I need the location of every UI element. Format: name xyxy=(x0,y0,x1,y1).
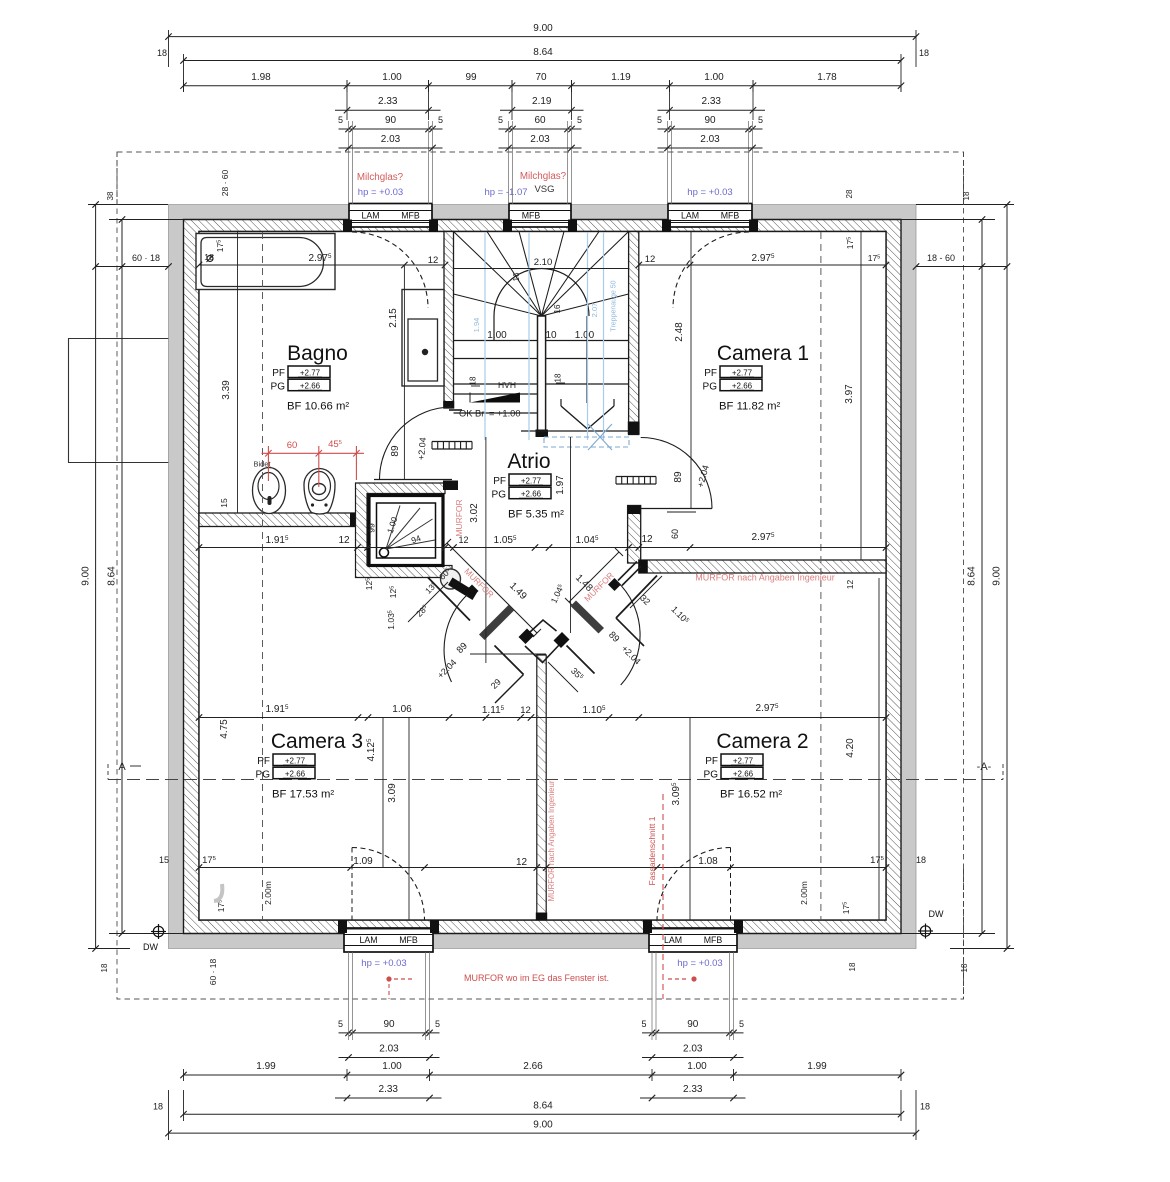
svg-text:Bagno: Bagno xyxy=(287,342,348,365)
svg-text:2.00m: 2.00m xyxy=(263,881,273,905)
svg-text:9.00: 9.00 xyxy=(533,23,553,34)
svg-text:DW: DW xyxy=(929,909,944,919)
svg-text:MURFOR nach Angaben Ingenieur: MURFOR nach Angaben Ingenieur xyxy=(547,780,556,901)
svg-text:1.99: 1.99 xyxy=(256,1061,276,1072)
svg-text:12: 12 xyxy=(645,254,656,265)
svg-text:18: 18 xyxy=(204,252,214,262)
svg-text:5: 5 xyxy=(438,115,443,125)
svg-text:1.94: 1.94 xyxy=(472,318,481,333)
svg-text:1.09: 1.09 xyxy=(353,856,373,867)
svg-text:Milchglas?: Milchglas? xyxy=(357,172,404,183)
svg-text:MFB: MFB xyxy=(401,211,420,221)
svg-text:+2.77: +2.77 xyxy=(732,368,753,377)
svg-text:90: 90 xyxy=(383,1019,395,1030)
svg-text:9.00: 9.00 xyxy=(992,566,1003,586)
svg-text:5: 5 xyxy=(758,115,763,125)
svg-text:12: 12 xyxy=(428,255,439,266)
svg-text:MFB: MFB xyxy=(399,935,418,945)
svg-text:16: 16 xyxy=(553,304,562,313)
svg-text:PF: PF xyxy=(272,368,285,379)
svg-text:MURFOR: MURFOR xyxy=(454,499,464,536)
svg-text:+2.66: +2.66 xyxy=(285,770,306,779)
svg-text:2.33: 2.33 xyxy=(378,96,398,107)
svg-text:5: 5 xyxy=(338,115,343,125)
svg-text:38: 38 xyxy=(106,191,115,200)
svg-text:hp = +0.03: hp = +0.03 xyxy=(687,187,732,198)
svg-text:+2.77: +2.77 xyxy=(285,756,306,765)
svg-text:MURFOR wo im EG das Fenster is: MURFOR wo im EG das Fenster ist. xyxy=(464,973,609,983)
svg-text:LAM: LAM xyxy=(664,935,682,945)
svg-text:1.99: 1.99 xyxy=(807,1061,827,1072)
svg-text:PG: PG xyxy=(704,770,719,781)
svg-text:DW: DW xyxy=(143,942,158,952)
svg-text:hp = -1.07: hp = -1.07 xyxy=(484,187,527,198)
svg-text:4.20: 4.20 xyxy=(845,738,856,758)
svg-text:9.00: 9.00 xyxy=(81,566,92,586)
svg-text:4.75: 4.75 xyxy=(219,719,230,739)
svg-text:1.98: 1.98 xyxy=(251,72,271,83)
svg-text:+2.66: +2.66 xyxy=(521,490,542,499)
svg-text:BF 5.35 m²: BF 5.35 m² xyxy=(508,509,564,521)
svg-text:PG: PG xyxy=(492,490,507,501)
svg-text:MFB: MFB xyxy=(721,211,740,221)
svg-text:VSG: VSG xyxy=(534,184,554,195)
svg-text:2.03: 2.03 xyxy=(381,134,401,145)
svg-text:5: 5 xyxy=(577,115,582,125)
svg-text:1.06: 1.06 xyxy=(392,704,412,715)
svg-text:60: 60 xyxy=(670,529,680,539)
svg-text:2.33: 2.33 xyxy=(702,96,722,107)
svg-text:BF 11.82 m²: BF 11.82 m² xyxy=(719,401,781,413)
svg-text:Camera 3: Camera 3 xyxy=(271,730,363,753)
svg-text:8.64: 8.64 xyxy=(533,47,553,58)
svg-text:5: 5 xyxy=(739,1019,744,1029)
svg-text:1.97: 1.97 xyxy=(555,475,566,495)
svg-text:28: 28 xyxy=(845,189,854,198)
svg-text:1.00: 1.00 xyxy=(382,72,402,83)
svg-text:-A-: -A- xyxy=(977,761,992,773)
svg-text:89: 89 xyxy=(673,471,684,483)
svg-text:LAM: LAM xyxy=(681,211,699,221)
svg-text:+2.77: +2.77 xyxy=(300,368,321,377)
svg-text:+2.77: +2.77 xyxy=(521,476,542,485)
svg-text:15: 15 xyxy=(159,855,169,865)
svg-text:PG: PG xyxy=(271,382,286,393)
svg-text:12: 12 xyxy=(641,534,653,545)
svg-text:8.64: 8.64 xyxy=(107,566,118,586)
svg-text:PF: PF xyxy=(493,476,506,487)
svg-text:3.39: 3.39 xyxy=(221,380,232,400)
svg-text:1.78: 1.78 xyxy=(817,72,837,83)
svg-text:Milchglas?: Milchglas? xyxy=(520,171,567,182)
svg-text:18 - 60: 18 - 60 xyxy=(927,253,955,263)
svg-text:2.03: 2.03 xyxy=(683,1044,703,1055)
svg-text:12: 12 xyxy=(516,857,528,868)
svg-text:9.00: 9.00 xyxy=(533,1120,553,1131)
svg-text:hp = +0.03: hp = +0.03 xyxy=(361,958,406,969)
svg-text:99: 99 xyxy=(367,523,377,533)
svg-text:18: 18 xyxy=(919,48,929,58)
svg-text:3.97: 3.97 xyxy=(844,384,855,404)
svg-text:BF 10.66 m²: BF 10.66 m² xyxy=(287,401,349,413)
svg-text:BF 16.52 m²: BF 16.52 m² xyxy=(720,789,782,801)
svg-text:3.09: 3.09 xyxy=(387,783,398,803)
svg-text:2.03: 2.03 xyxy=(379,1044,399,1055)
svg-text:+2.04: +2.04 xyxy=(416,437,428,461)
svg-text:18: 18 xyxy=(100,963,109,972)
svg-text:2.48: 2.48 xyxy=(674,322,685,342)
svg-text:1.00: 1.00 xyxy=(704,72,724,83)
svg-text:BF 17.53 m²: BF 17.53 m² xyxy=(272,789,334,801)
svg-text:5: 5 xyxy=(435,1019,440,1029)
svg-text:1.00: 1.00 xyxy=(687,1061,707,1072)
svg-text:18: 18 xyxy=(157,48,167,58)
svg-text:18: 18 xyxy=(916,855,926,865)
svg-text:60: 60 xyxy=(534,115,546,126)
svg-text:3.02: 3.02 xyxy=(469,503,480,523)
svg-text:70: 70 xyxy=(535,72,547,83)
svg-text:2.03: 2.03 xyxy=(530,134,550,145)
svg-text:1.00: 1.00 xyxy=(487,330,507,341)
svg-text:Atrio: Atrio xyxy=(507,450,550,473)
svg-text:Treppenauge 50: Treppenauge 50 xyxy=(611,280,618,331)
svg-text:Fassadenschnitt 1: Fassadenschnitt 1 xyxy=(647,816,657,885)
svg-text:1.08: 1.08 xyxy=(698,856,718,867)
svg-text:MURFOR nach Angaben Ingenieur: MURFOR nach Angaben Ingenieur xyxy=(695,573,835,583)
svg-text:8.64: 8.64 xyxy=(533,1101,553,1112)
svg-text:15: 15 xyxy=(219,498,229,508)
svg-text:12: 12 xyxy=(520,705,531,716)
svg-text:18: 18 xyxy=(153,1102,163,1112)
svg-text:HVH: HVH xyxy=(498,380,516,390)
svg-text:2.33: 2.33 xyxy=(379,1084,399,1095)
svg-text:5: 5 xyxy=(641,1019,646,1029)
svg-text:8.64: 8.64 xyxy=(967,566,978,586)
svg-text:16: 16 xyxy=(512,272,521,281)
svg-text:90: 90 xyxy=(687,1019,699,1030)
svg-text:+2.66: +2.66 xyxy=(300,382,321,391)
svg-text:2.00m: 2.00m xyxy=(799,881,809,905)
svg-text:PG: PG xyxy=(256,770,271,781)
svg-text:2.15: 2.15 xyxy=(388,308,399,328)
svg-text:+2.77: +2.77 xyxy=(733,756,754,765)
svg-text:hp = +0.03: hp = +0.03 xyxy=(358,187,403,198)
svg-text:18: 18 xyxy=(848,962,857,971)
svg-text:18: 18 xyxy=(554,373,563,382)
svg-text:60 · 18: 60 · 18 xyxy=(208,958,218,985)
svg-text:LAM: LAM xyxy=(359,935,377,945)
svg-text:60: 60 xyxy=(287,440,298,451)
svg-text:10: 10 xyxy=(545,330,557,341)
svg-text:12: 12 xyxy=(338,535,350,546)
svg-text:12: 12 xyxy=(845,580,855,590)
svg-text:PF: PF xyxy=(705,756,718,767)
svg-text:18: 18 xyxy=(920,1102,930,1112)
svg-text:2.66: 2.66 xyxy=(523,1061,543,1072)
svg-text:90: 90 xyxy=(385,115,397,126)
svg-text:1.00: 1.00 xyxy=(382,1061,402,1072)
svg-text:PG: PG xyxy=(703,382,718,393)
svg-text:90: 90 xyxy=(704,115,716,126)
svg-text:1.00: 1.00 xyxy=(575,330,595,341)
svg-text:+2.66: +2.66 xyxy=(732,382,753,391)
svg-text:5: 5 xyxy=(657,115,662,125)
svg-text:+2.66: +2.66 xyxy=(733,770,754,779)
svg-text:LAM: LAM xyxy=(361,211,379,221)
svg-text:MFB: MFB xyxy=(704,935,723,945)
svg-text:2.19: 2.19 xyxy=(532,96,552,107)
svg-text:89: 89 xyxy=(390,445,401,457)
svg-text:99: 99 xyxy=(465,72,477,83)
svg-text:2.33: 2.33 xyxy=(683,1084,703,1095)
svg-text:2.10: 2.10 xyxy=(534,257,553,268)
svg-text:hp = +0.03: hp = +0.03 xyxy=(677,958,722,969)
svg-text:18: 18 xyxy=(469,376,478,385)
svg-text:2.07: 2.07 xyxy=(590,303,599,318)
svg-text:1.19: 1.19 xyxy=(611,72,631,83)
svg-text:18: 18 xyxy=(960,963,969,972)
svg-text:Camera 2: Camera 2 xyxy=(716,730,808,753)
svg-text:PF: PF xyxy=(257,756,270,767)
svg-text:Camera 1: Camera 1 xyxy=(717,342,809,365)
svg-text:2.03: 2.03 xyxy=(700,134,720,145)
svg-text:MFB: MFB xyxy=(522,211,541,221)
svg-text:5: 5 xyxy=(498,115,503,125)
svg-text:OK Br. = +1.00: OK Br. = +1.00 xyxy=(459,409,521,419)
svg-text:60 · 18: 60 · 18 xyxy=(132,253,160,263)
svg-text:28 · 60: 28 · 60 xyxy=(220,169,230,196)
svg-text:5: 5 xyxy=(338,1019,343,1029)
svg-text:PF: PF xyxy=(704,368,717,379)
